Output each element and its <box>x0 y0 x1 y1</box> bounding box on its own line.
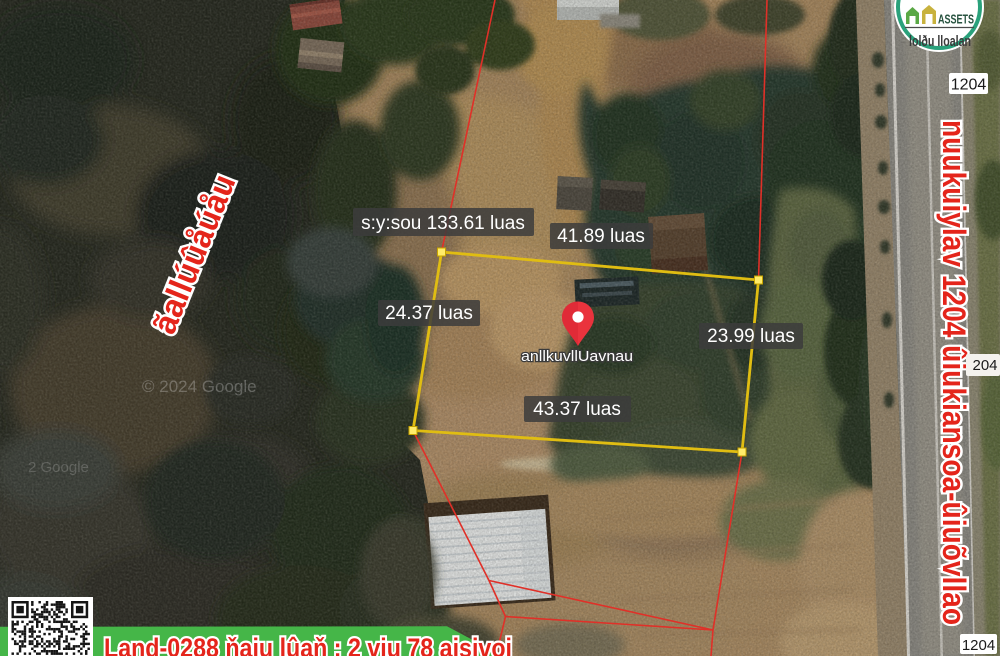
svg-text:Land-0288 ňaiu lûaň : 2 viu 78: Land-0288 ňaiu lûaň : 2 viu 78 aisivoi <box>104 633 512 656</box>
svg-text:anllkuvllUavnau: anllkuvllUavnau <box>521 348 633 365</box>
svg-text:lolðu lloalan: lolðu lloalan <box>909 33 971 50</box>
svg-text:1204: 1204 <box>962 637 995 654</box>
svg-text:41.89 luas: 41.89 luas <box>557 226 645 247</box>
svg-text:204: 204 <box>972 357 997 374</box>
svg-text:ASSETS: ASSETS <box>938 13 974 27</box>
svg-text:24.37 luas: 24.37 luas <box>385 303 473 324</box>
svg-text:s:y:sou 133.61 luas: s:y:sou 133.61 luas <box>361 213 525 234</box>
svg-text:43.37 luas: 43.37 luas <box>533 399 621 420</box>
svg-text:23.99 luas: 23.99 luas <box>707 326 795 347</box>
svg-text:1204: 1204 <box>951 77 987 94</box>
